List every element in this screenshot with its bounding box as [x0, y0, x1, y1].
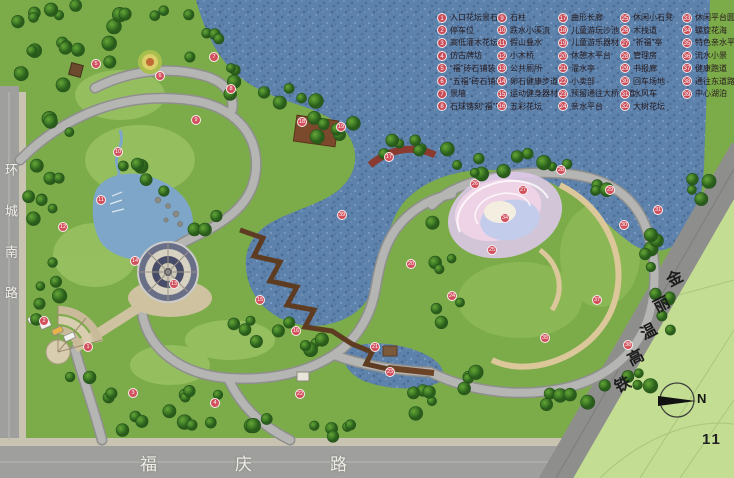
tree-icon	[447, 254, 456, 263]
tree-icon	[591, 185, 601, 195]
tree-icon	[48, 258, 58, 268]
tree-icon	[187, 420, 198, 431]
tree-icon	[379, 148, 390, 159]
tree-icon	[431, 303, 442, 314]
tree-icon	[315, 333, 328, 346]
tree-icon	[581, 395, 595, 409]
tree-icon	[163, 405, 176, 418]
tree-icon	[687, 173, 699, 185]
park-master-plan: 环城南路 福庆路 金丽温高铁 N 11 1入口花坛景石2停车位3高低灌木花坛4仿…	[0, 0, 734, 478]
tree-icon	[199, 223, 212, 236]
tree-icon	[44, 3, 58, 17]
tree-icon	[423, 386, 436, 399]
tree-icon	[214, 34, 224, 44]
tree-icon	[118, 161, 128, 171]
pavilion	[69, 63, 84, 78]
plan-drawing	[0, 0, 734, 478]
tree-icon	[136, 415, 148, 427]
tree-icon	[284, 317, 295, 328]
tree-icon	[119, 8, 131, 20]
tree-icon	[540, 398, 552, 410]
tree-icon	[30, 159, 43, 172]
tree-icon	[414, 145, 425, 156]
tree-icon	[52, 289, 67, 304]
tree-icon	[407, 387, 419, 399]
tree-icon	[639, 248, 651, 260]
tree-icon	[140, 174, 152, 186]
tree-icon	[104, 56, 116, 68]
tree-icon	[695, 193, 708, 206]
tree-icon	[435, 316, 448, 329]
tree-icon	[664, 292, 675, 303]
tree-icon	[644, 228, 658, 242]
tree-icon	[102, 36, 117, 51]
tree-icon	[150, 11, 160, 21]
circular-plaza	[138, 242, 198, 302]
tree-icon	[50, 276, 61, 287]
tree-icon	[386, 134, 399, 147]
tree-icon	[309, 94, 324, 109]
tree-icon	[497, 164, 511, 178]
tree-icon	[59, 42, 72, 55]
tree-icon	[284, 83, 294, 93]
tree-icon	[29, 12, 39, 22]
tree-icon	[30, 314, 42, 326]
tree-icon	[184, 385, 196, 397]
tree-icon	[345, 420, 355, 430]
tree-icon	[310, 421, 320, 431]
left-sidewalk	[19, 92, 26, 444]
tree-icon	[159, 186, 170, 197]
tree-icon	[469, 365, 484, 380]
tree-icon	[346, 116, 360, 130]
flower-rings	[138, 50, 162, 74]
management-house	[383, 346, 397, 356]
tree-icon	[116, 424, 129, 437]
tree-icon	[34, 298, 45, 309]
tree-icon	[511, 151, 523, 163]
tree-icon	[205, 417, 216, 428]
tree-icon	[657, 311, 667, 321]
tree-icon	[36, 195, 47, 206]
tree-icon	[184, 10, 194, 20]
tree-icon	[458, 382, 471, 395]
tree-icon	[410, 135, 421, 146]
tree-icon	[331, 123, 343, 135]
tree-icon	[211, 210, 223, 222]
tree-icon	[452, 160, 461, 169]
tree-icon	[318, 118, 329, 129]
tree-icon	[297, 93, 307, 103]
tree-icon	[14, 67, 28, 81]
tree-icon	[71, 43, 84, 56]
tree-icon	[646, 262, 656, 272]
tree-icon	[226, 63, 235, 72]
tree-icon	[27, 46, 38, 57]
tree-icon	[250, 335, 262, 347]
tree-icon	[426, 216, 439, 229]
tree-icon	[65, 128, 74, 137]
tree-icon	[12, 15, 25, 28]
tree-icon	[227, 75, 241, 89]
tree-icon	[246, 418, 261, 433]
tree-icon	[23, 191, 35, 203]
tree-icon	[213, 390, 223, 400]
tree-icon	[246, 316, 255, 325]
tree-icon	[258, 87, 270, 99]
tree-icon	[643, 379, 658, 394]
tree-icon	[224, 88, 237, 101]
tree-icon	[272, 325, 284, 337]
tree-icon	[83, 371, 96, 384]
tree-icon	[702, 174, 716, 188]
tree-icon	[687, 185, 696, 194]
tree-icon	[599, 380, 611, 392]
tree-icon	[54, 173, 64, 183]
tree-icon	[36, 282, 45, 291]
tree-icon	[327, 431, 339, 443]
tree-icon	[65, 372, 75, 382]
tree-icon	[435, 264, 445, 274]
tree-icon	[27, 212, 41, 226]
tree-icon	[131, 158, 144, 171]
tree-icon	[56, 78, 70, 92]
tree-icon	[650, 288, 662, 300]
tree-icon	[185, 52, 195, 62]
tree-icon	[44, 115, 58, 129]
tree-icon	[665, 325, 675, 335]
tree-icon	[106, 388, 117, 399]
tree-icon	[634, 369, 643, 378]
tree-icon	[409, 407, 423, 421]
tree-icon	[474, 153, 485, 164]
tree-icon	[600, 183, 614, 197]
tree-icon	[261, 413, 272, 424]
tree-icon	[300, 340, 311, 351]
tree-icon	[455, 298, 464, 307]
tree-icon	[48, 204, 57, 213]
tree-icon	[470, 168, 479, 177]
tree-icon	[440, 142, 454, 156]
tree-icon	[562, 159, 572, 169]
tree-icon	[622, 370, 634, 382]
tree-icon	[159, 6, 169, 16]
tree-icon	[273, 96, 286, 109]
tree-icon	[70, 0, 82, 12]
tree-icon	[564, 388, 577, 401]
tree-icon	[228, 318, 240, 330]
toilet-building	[297, 372, 309, 381]
tree-icon	[522, 148, 533, 159]
tree-icon	[310, 130, 324, 144]
tree-icon	[633, 380, 643, 390]
tree-icon	[537, 155, 552, 170]
